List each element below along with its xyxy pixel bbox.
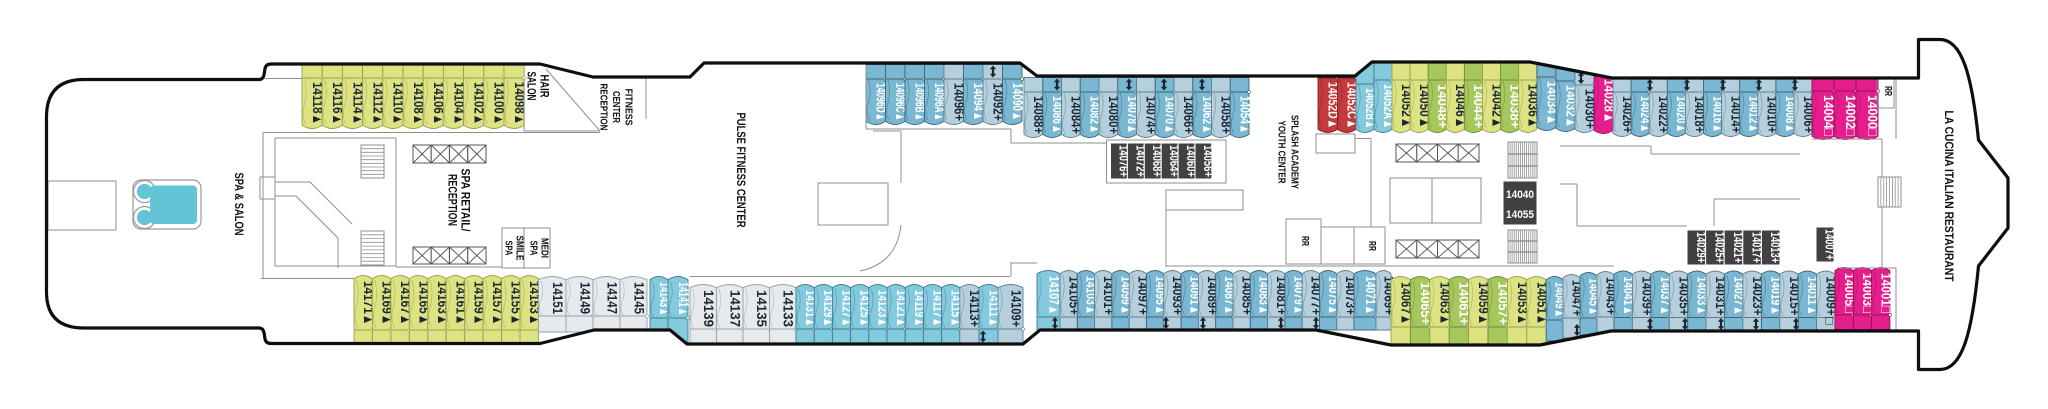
svg-text:CENTER: CENTER [610,91,622,123]
svg-text:14107▲: 14107▲ [1045,276,1061,315]
svg-text:14071▲: 14071▲ [1362,276,1378,315]
svg-text:14040: 14040 [1506,189,1534,201]
svg-text:14090▲: 14090▲ [1009,83,1025,121]
svg-text:14137: 14137 [727,290,743,327]
svg-text:14147: 14147 [603,282,619,314]
svg-text:RECEPTION: RECEPTION [598,84,610,131]
svg-text:14135: 14135 [753,290,769,327]
svg-text:SPA & SALON: SPA & SALON [232,173,244,236]
svg-text:14145: 14145 [630,282,646,314]
svg-text:YOUTH CENTER: YOUTH CENTER [1276,121,1288,184]
svg-text:14004□: 14004□ [1820,95,1836,136]
svg-text:14149: 14149 [576,282,592,314]
svg-text:SALON: SALON [525,72,537,101]
svg-text:HAIR: HAIR [538,75,550,99]
svg-text:SPA: SPA [503,241,514,256]
svg-text:SPA RETAIL/: SPA RETAIL/ [459,169,471,233]
svg-text:FITNESS: FITNESS [623,89,635,126]
svg-text:RR: RR [1882,86,1894,96]
svg-text:□: □ [1823,317,1837,325]
svg-text:14001□: 14001□ [1878,273,1894,313]
svg-text:SPA: SPA [528,241,539,256]
svg-text:RECEPTION: RECEPTION [446,174,458,226]
svg-text:14055: 14055 [1506,209,1534,221]
svg-text:14002□: 14002□ [1842,95,1858,136]
svg-text:RR: RR [1366,241,1378,251]
svg-text:SPLASH ACADEMY: SPLASH ACADEMY [1289,115,1301,189]
svg-text:RR: RR [1299,236,1311,246]
svg-text:14133: 14133 [780,290,796,327]
svg-text:LA CUCINA ITALIAN RESTAURANT: LA CUCINA ITALIAN RESTAURANT [1942,111,1956,282]
svg-text:14139: 14139 [700,290,716,327]
svg-text:14141▲: 14141▲ [675,282,691,316]
svg-text:MEDI: MEDI [539,238,550,258]
svg-text:SMILE: SMILE [514,236,525,261]
svg-text:PULSE FITNESS CENTER: PULSE FITNESS CENTER [734,113,746,229]
svg-text:14151: 14151 [549,282,565,314]
svg-text:14109+: 14109+ [1007,290,1023,327]
svg-text:14013+: 14013+ [1768,232,1783,263]
svg-text:14007+: 14007+ [1823,229,1838,260]
svg-text:14054▲: 14054▲ [1236,96,1252,134]
svg-text:14056+: 14056+ [1201,145,1216,177]
